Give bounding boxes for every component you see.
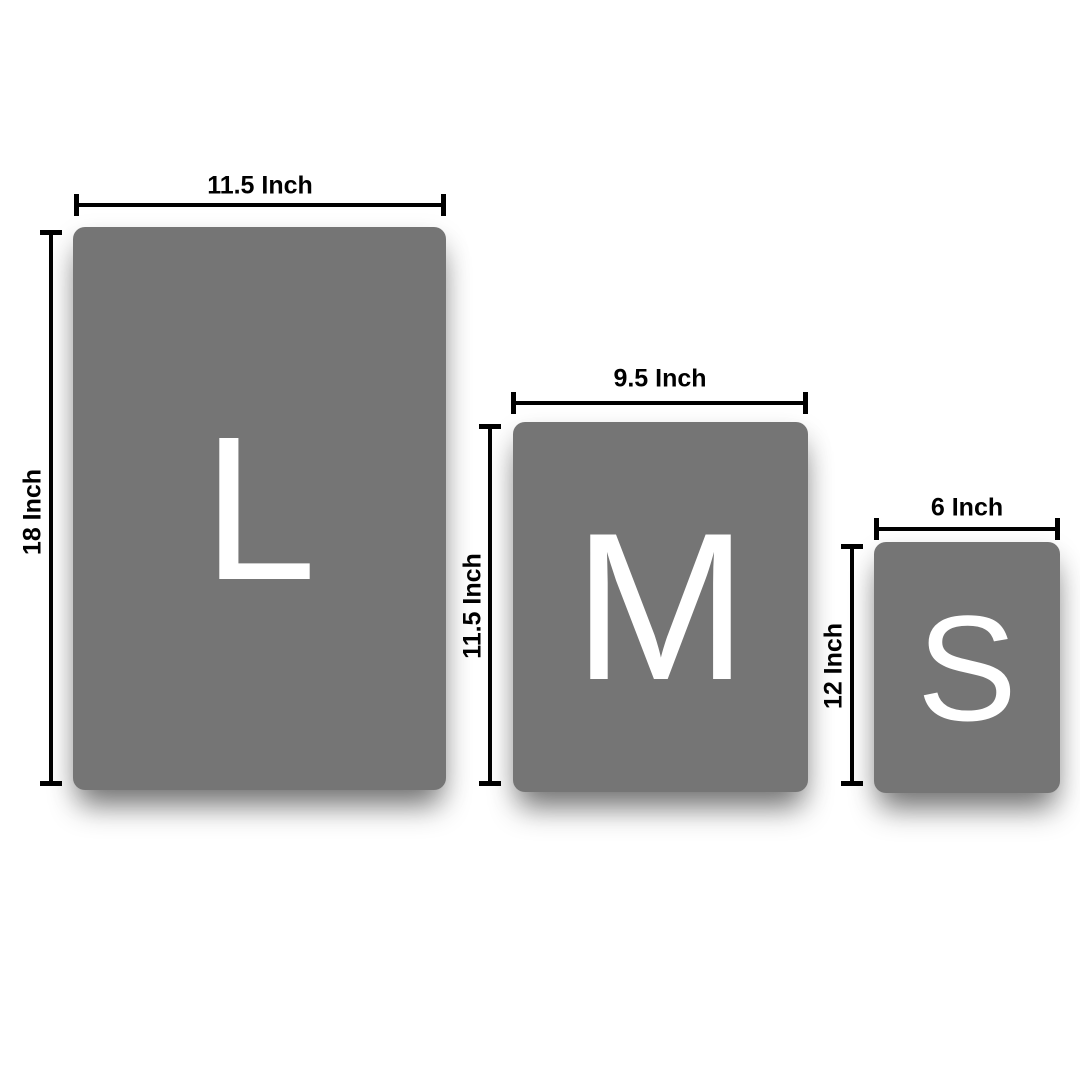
width-measure-line-medium: [511, 401, 808, 405]
size-panel-medium: 9.5 Inch 11.5 Inch M: [0, 0, 1080, 1080]
width-measure-line-small: [874, 527, 1060, 531]
width-measure-line-large: [74, 203, 446, 207]
board-large: L: [73, 227, 446, 790]
size-panel-small: 6 Inch 12 Inch S: [0, 0, 1080, 1080]
height-label-large: 18 Inch: [19, 469, 48, 555]
size-panel-large: 11.5 Inch 18 Inch L: [0, 0, 1080, 1080]
board-medium: M: [513, 422, 808, 792]
height-measure-line-small: [850, 544, 854, 786]
width-label-small: 6 Inch: [931, 494, 1003, 523]
size-letter-small: S: [917, 593, 1017, 743]
height-measure-line-medium: [488, 424, 492, 786]
size-letter-medium: M: [573, 502, 748, 712]
width-label-large: 11.5 Inch: [207, 172, 313, 201]
size-letter-large: L: [202, 406, 316, 611]
size-comparison-diagram: 11.5 Inch 18 Inch L 9.5 Inch 11.5 Inch M…: [0, 0, 1080, 1080]
width-label-medium: 9.5 Inch: [613, 365, 706, 394]
height-measure-line-large: [49, 230, 53, 786]
height-label-medium: 11.5 Inch: [459, 553, 488, 659]
board-small: S: [874, 542, 1060, 793]
height-label-small: 12 Inch: [820, 623, 849, 709]
